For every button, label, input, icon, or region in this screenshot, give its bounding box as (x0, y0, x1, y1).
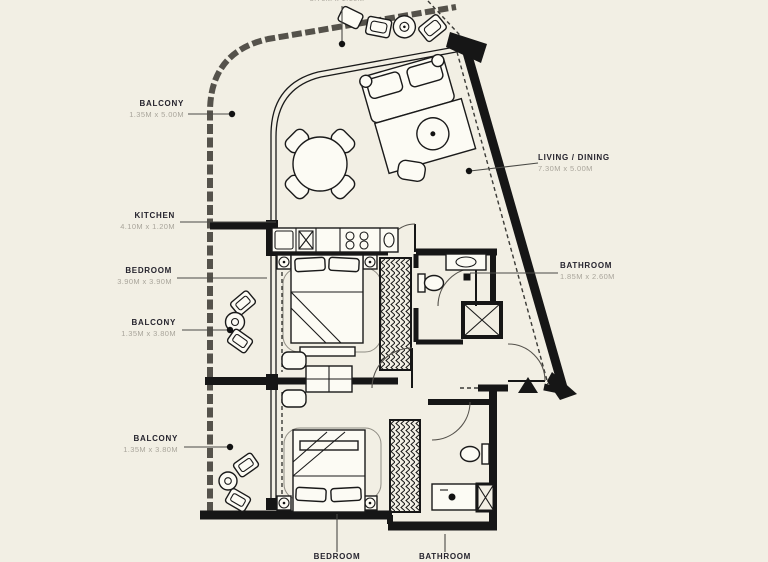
label-bedroom-1: BEDROOM 3.90M x 3.90M (62, 266, 172, 286)
kitchen-counter (272, 228, 398, 252)
bedroom-1-name: BEDROOM (62, 266, 172, 276)
bed-1 (277, 255, 377, 356)
label-kitchen: KITCHEN 4.10M x 1.20M (65, 211, 175, 231)
floor-plan-page: { "title": "Apartment floor plan", "colo… (0, 0, 768, 560)
bedroom-1-dims: 3.90M x 3.90M (62, 277, 172, 286)
bathroom-1-dims: 1.85M x 2.60M (560, 272, 680, 281)
toilet-2 (461, 444, 490, 464)
label-balcony-2: BALCONY 1.35M x 3.80M (66, 318, 176, 338)
bathroom-1-name: BATHROOM (560, 261, 680, 271)
balcony-3-name: BALCONY (68, 434, 178, 444)
balcony-top-dims: 3.70M x 1.10M (292, 0, 382, 3)
label-bathroom-1: BATHROOM 1.85M x 2.60M (560, 261, 680, 281)
label-bathroom-2: BATHROOM (400, 552, 490, 562)
balcony-3-dims: 1.35M x 3.80M (68, 445, 178, 454)
balcony-2-dims: 1.35M x 3.80M (66, 329, 176, 338)
label-bedroom-2: BEDROOM (292, 552, 382, 562)
toilet-1 (418, 274, 444, 292)
balcony-2-name: BALCONY (66, 318, 176, 328)
vanity-1 (446, 254, 486, 270)
label-balcony-1: BALCONY 1.35M x 5.00M (74, 99, 184, 119)
bedroom-2-name: BEDROOM (292, 552, 382, 562)
bathroom-2-name: BATHROOM (400, 552, 490, 562)
label-balcony-top: 3.70M x 1.10M (292, 0, 382, 3)
label-balcony-3: BALCONY 1.35M x 3.80M (68, 434, 178, 454)
kitchen-dims: 4.10M x 1.20M (65, 222, 175, 231)
balcony-1-name: BALCONY (74, 99, 184, 109)
label-living-dining: LIVING / DINING 7.30M x 5.00M (538, 153, 658, 173)
dining-table (283, 127, 357, 201)
kitchen-name: KITCHEN (65, 211, 175, 221)
living-dining-name: LIVING / DINING (538, 153, 658, 163)
balcony-1-dims: 1.35M x 5.00M (74, 110, 184, 119)
wardrobe-bedroom-1 (380, 258, 411, 370)
wardrobe-bedroom-2 (390, 420, 420, 512)
living-dining-dims: 7.30M x 5.00M (538, 164, 658, 173)
